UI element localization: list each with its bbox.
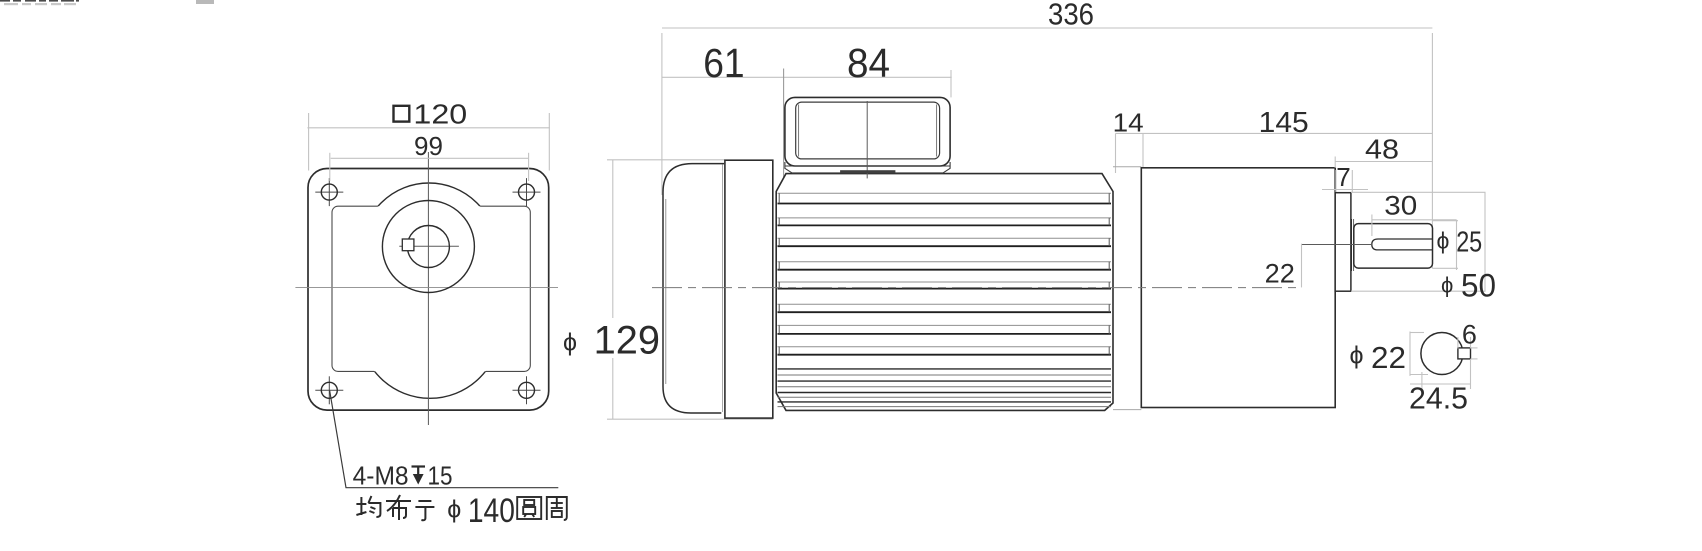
svg-text:24.5: 24.5: [1409, 381, 1468, 416]
svg-text:7: 7: [1336, 162, 1350, 192]
svg-text:ϕ: ϕ: [1350, 342, 1364, 370]
svg-text:120: 120: [413, 98, 467, 129]
svg-text:61: 61: [703, 40, 744, 86]
svg-text:129: 129: [594, 319, 660, 363]
svg-text:ϕ: ϕ: [447, 496, 461, 524]
svg-text:140: 140: [468, 492, 515, 530]
svg-text:22: 22: [1265, 259, 1295, 289]
svg-text:48: 48: [1365, 134, 1399, 165]
svg-text:99: 99: [414, 131, 443, 161]
svg-text:14: 14: [1113, 108, 1144, 138]
svg-text:4-M8: 4-M8: [353, 461, 409, 491]
svg-text:ϕ: ϕ: [1441, 273, 1453, 298]
svg-text:15: 15: [428, 461, 453, 491]
svg-text:ϕ: ϕ: [563, 329, 577, 357]
svg-text:30: 30: [1384, 191, 1417, 221]
svg-text:145: 145: [1259, 107, 1309, 139]
svg-text:25: 25: [1456, 227, 1482, 259]
svg-text:ϕ: ϕ: [1437, 228, 1450, 254]
svg-text:336: 336: [1048, 0, 1094, 32]
svg-text:22: 22: [1371, 340, 1406, 375]
svg-text:84: 84: [847, 40, 890, 86]
svg-text:6: 6: [1462, 320, 1477, 350]
svg-text:50: 50: [1461, 268, 1496, 304]
